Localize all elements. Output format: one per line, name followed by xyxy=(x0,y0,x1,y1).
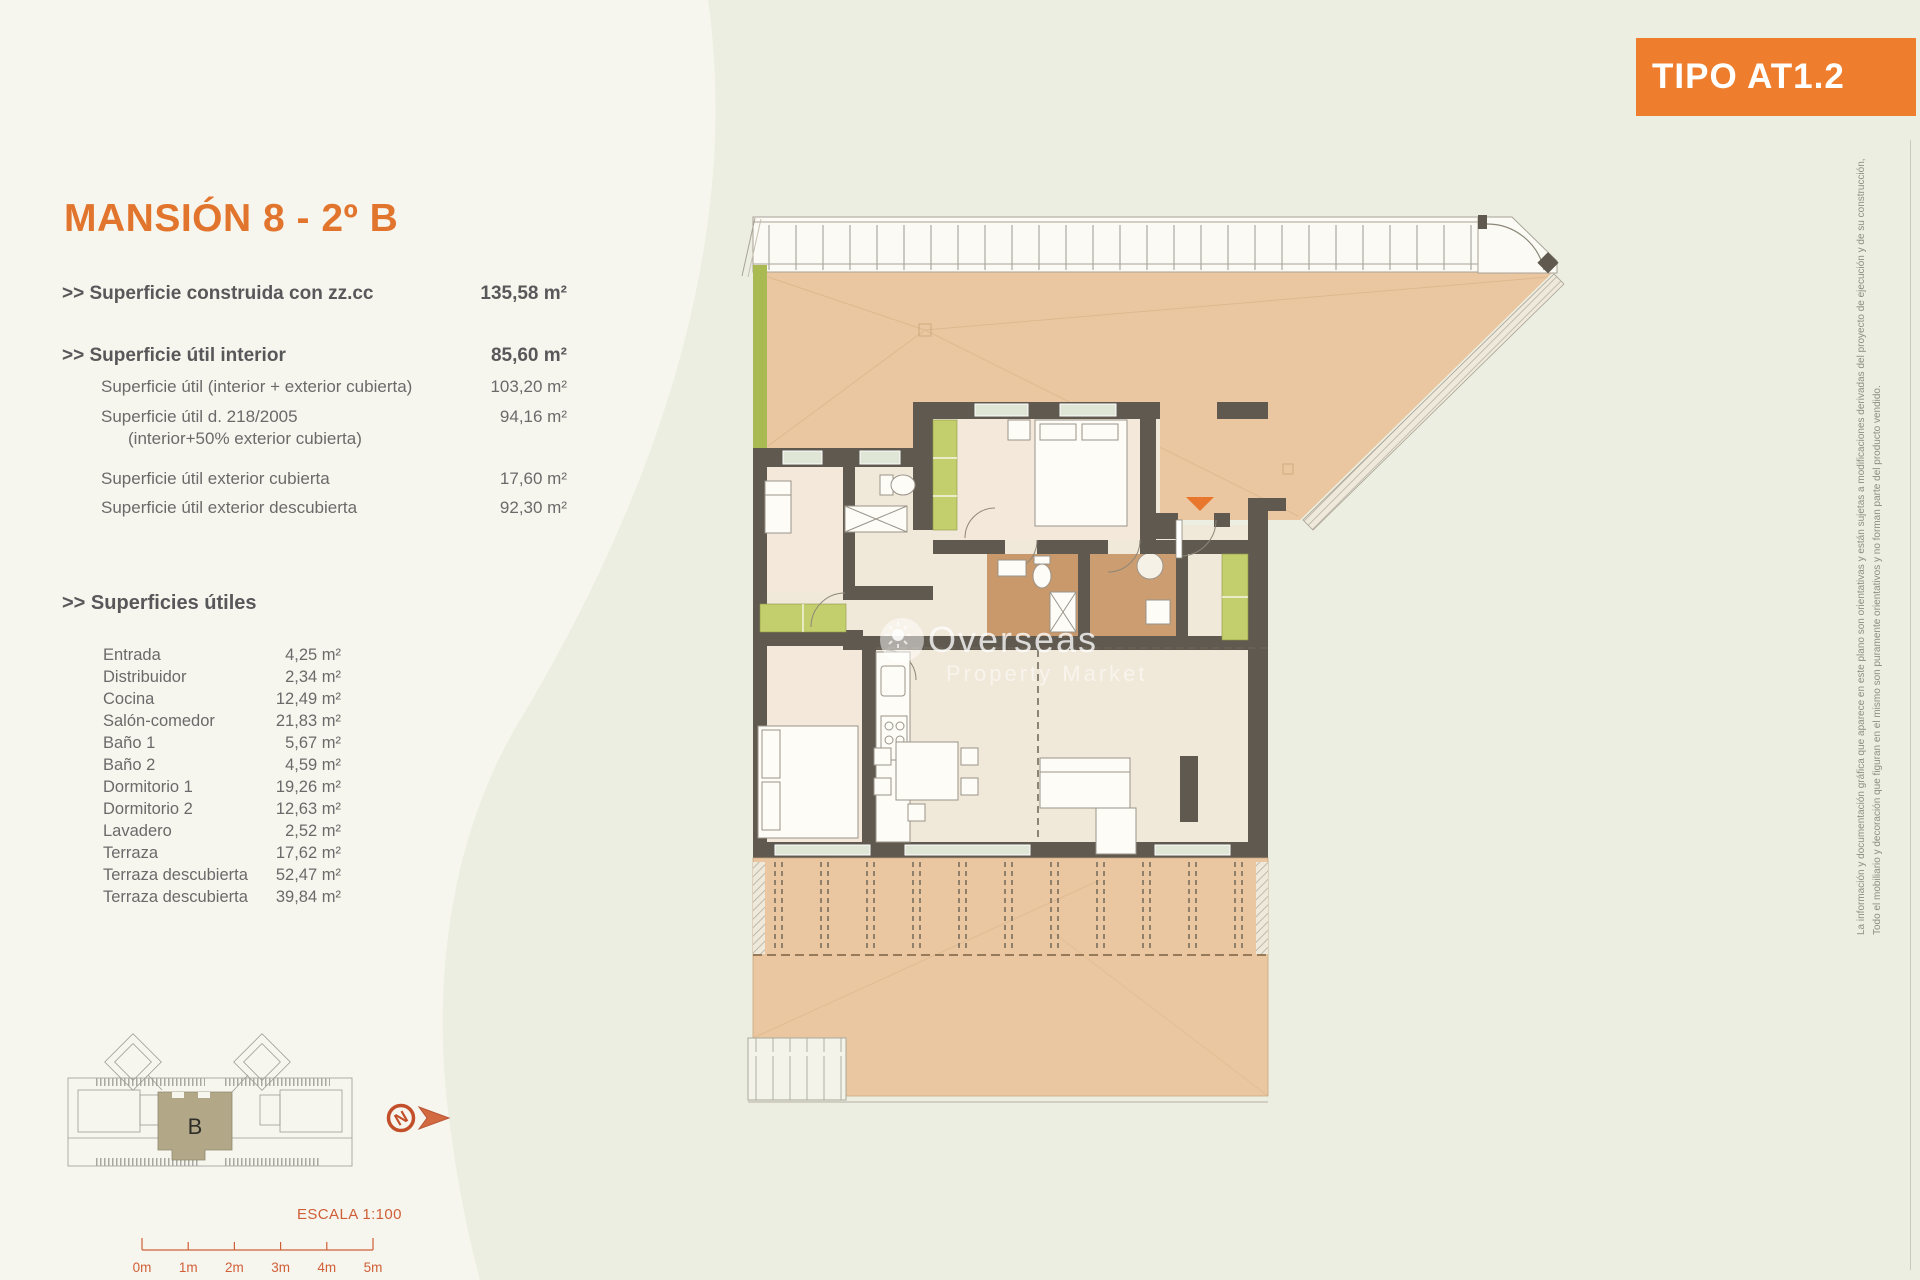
summary-label: Superficie útil d. 218/2005 xyxy=(62,407,298,427)
room-value: 12,49 m² xyxy=(276,688,341,710)
summary-label: >> Superficie útil interior xyxy=(62,345,286,367)
room-value: 19,26 m² xyxy=(276,776,341,798)
room-row: Cocina12,49 m² xyxy=(103,688,341,710)
room-value: 12,63 m² xyxy=(276,798,341,820)
summary-sublabel: (interior+50% exterior cubierta) xyxy=(128,429,362,449)
room-label: Dormitorio 2 xyxy=(103,798,193,820)
room-row: Dormitorio 119,26 m² xyxy=(103,776,341,798)
scale-tick: 5m xyxy=(364,1260,383,1275)
terrace-corner-door xyxy=(1478,215,1559,273)
room-label: Terraza xyxy=(103,842,158,864)
summary-value: 94,16 m² xyxy=(500,407,567,427)
type-badge: TIPO AT1.2 xyxy=(1636,38,1916,116)
room-row: Baño 15,67 m² xyxy=(103,732,341,754)
summary-row: Superficie útil (interior + exterior cub… xyxy=(62,377,567,397)
room-value: 52,47 m² xyxy=(276,864,341,886)
room-value: 21,83 m² xyxy=(276,710,341,732)
summary-label: Superficie útil exterior descubierta xyxy=(62,498,357,518)
disclaimer-line2: Todo el mobiliario y decoración que figu… xyxy=(1872,140,1883,935)
summary-row: Superficie útil d. 218/2005 94,16 m² xyxy=(62,407,567,427)
room-row: Distribuidor2,34 m² xyxy=(103,666,341,688)
summary-label: Superficie útil (interior + exterior cub… xyxy=(62,377,412,397)
scale-tick: 2m xyxy=(225,1260,244,1275)
summary-value: 17,60 m² xyxy=(500,469,567,489)
room-value: 17,62 m² xyxy=(276,842,341,864)
floor-plan: Overseas Property Market xyxy=(600,150,1590,1130)
room-label: Terraza descubierta xyxy=(103,886,248,908)
room-label: Baño 2 xyxy=(103,754,155,776)
room-label: Lavadero xyxy=(103,820,172,842)
room-label: Dormitorio 1 xyxy=(103,776,193,798)
planter-strip xyxy=(753,265,767,448)
summary-row: Superficie útil exterior cubierta 17,60 … xyxy=(62,469,567,489)
room-row: Lavadero2,52 m² xyxy=(103,820,341,842)
room-value: 2,34 m² xyxy=(285,666,341,688)
room-row: Terraza17,62 m² xyxy=(103,842,341,864)
scale-tick: 1m xyxy=(179,1260,198,1275)
summary-value: 103,20 m² xyxy=(490,377,567,397)
compass-icon: N xyxy=(385,1090,460,1145)
room-row: Terraza descubierta52,47 m² xyxy=(103,864,341,886)
watermark-line1: Overseas xyxy=(928,619,1098,660)
room-label: Entrada xyxy=(103,644,161,666)
room-row: Baño 24,59 m² xyxy=(103,754,341,776)
room-value: 2,52 m² xyxy=(285,820,341,842)
rooms-table: Entrada4,25 m² Distribuidor2,34 m² Cocin… xyxy=(103,644,341,908)
rooms-header: >> Superficies útiles xyxy=(62,592,257,615)
summary-value: 85,60 m² xyxy=(491,345,567,367)
summary-value: 135,58 m² xyxy=(480,283,567,305)
right-edge-rule xyxy=(1910,140,1911,1270)
room-label: Terraza descubierta xyxy=(103,864,248,886)
page-title: MANSIÓN 8 - 2º B xyxy=(64,197,398,241)
room-label: Cocina xyxy=(103,688,154,710)
watermark-line2: Property Market xyxy=(946,661,1148,686)
summary-label: >> Superficie construida con zz.cc xyxy=(62,283,374,305)
room-row: Terraza descubierta39,84 m² xyxy=(103,886,341,908)
summary-row: >> Superficie construida con zz.cc 135,5… xyxy=(62,283,567,305)
scale-tick: 0m xyxy=(133,1260,152,1275)
room-label: Distribuidor xyxy=(103,666,186,688)
room-value: 39,84 m² xyxy=(276,886,341,908)
room-row: Salón-comedor21,83 m² xyxy=(103,710,341,732)
scale-tick: 3m xyxy=(271,1260,290,1275)
summary-label: Superficie útil exterior cubierta xyxy=(62,469,330,489)
site-block-label: B xyxy=(188,1114,203,1139)
summary-row: Superficie útil exterior descubierta 92,… xyxy=(62,498,567,518)
terrace-railing-top xyxy=(742,217,1483,277)
room-value: 4,25 m² xyxy=(285,644,341,666)
room-label: Salón-comedor xyxy=(103,710,215,732)
room-value: 5,67 m² xyxy=(285,732,341,754)
scale-label: ESCALA 1:100 xyxy=(297,1206,402,1223)
plan-sheet: TIPO AT1.2 MANSIÓN 8 - 2º B >> Superfici… xyxy=(0,0,1920,1280)
room-row: Dormitorio 212,63 m² xyxy=(103,798,341,820)
room-label: Baño 1 xyxy=(103,732,155,754)
room-row: Entrada4,25 m² xyxy=(103,644,341,666)
room-value: 4,59 m² xyxy=(285,754,341,776)
summary-value: 92,30 m² xyxy=(500,498,567,518)
scale-tick: 4m xyxy=(317,1260,336,1275)
lower-terrace xyxy=(748,858,1268,1102)
summary-row: >> Superficie útil interior 85,60 m² xyxy=(62,345,567,367)
disclaimer-line1: La información y documentación gráfica q… xyxy=(1856,140,1867,935)
scale-bar: 0m 1m 2m 3m 4m 5m xyxy=(130,1236,385,1278)
